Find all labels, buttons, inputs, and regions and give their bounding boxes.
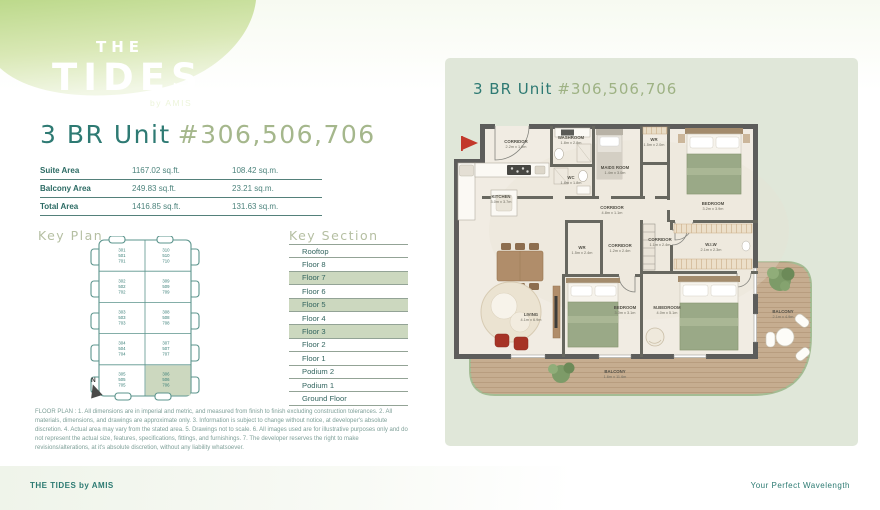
area-table: Suite Area1167.02 sq.ft.108.42 sq.m.Balc… <box>40 162 322 216</box>
key-section-floor-floor-2: Floor 2 <box>289 339 408 352</box>
disclaimer-text: FLOOR PLAN : 1. All dimensions are in im… <box>35 408 415 453</box>
key-plan-unit-cell: 310510710 <box>162 248 170 264</box>
room-label-corridor-2: CORRIDOR1.2m x 2.4m <box>608 243 632 253</box>
key-section-floor-floor-7: Floor 7 <box>289 272 408 285</box>
brochure-page: THE TIDES by AMIS 3 BR Unit#306,506,706 … <box>0 0 880 510</box>
key-section-heading: Key Section <box>289 228 379 243</box>
room-label-m-bedroom: M.BEDROOM4.0m x 5.1m <box>653 305 681 315</box>
room-label-kitchen: KITCHEN3.0m x 3.7m <box>491 194 512 204</box>
key-plan-unit-cell: 303503703 <box>118 310 126 326</box>
room-label-washroom: WASHROOM1.8m x 2.8m <box>558 135 585 145</box>
area-row-sqm: 23.21 sq.m. <box>232 184 320 193</box>
floor-plan-title-prefix: 3 BR Unit <box>473 80 552 98</box>
room-label-bedroom-top: BEDROOM3.2m x 3.9m <box>702 201 725 211</box>
key-plan-unit-cell: 306506706 <box>162 372 170 388</box>
key-plan-unit-cell: 305505705 <box>118 372 126 388</box>
key-plan-unit-cell: 308508708 <box>162 310 170 326</box>
room-label-corridor-main: CORRIDOR4.8m x 1.1m <box>600 205 624 215</box>
key-section-floor-floor-8: Floor 8 <box>289 258 408 271</box>
key-section-floor-floor-5: Floor 5 <box>289 299 408 312</box>
area-table-row: Balcony Area249.83 sq.ft.23.21 sq.m. <box>40 180 322 198</box>
room-label-balcony-right: BALCONY2.1m x 4.9m <box>772 309 793 319</box>
bedroom-top-bed <box>678 128 750 194</box>
north-label: N <box>91 377 96 384</box>
area-row-label: Suite Area <box>40 166 132 175</box>
tv-console <box>553 286 560 338</box>
footer-band <box>0 466 880 510</box>
area-row-sqft: 1416.85 sq.ft. <box>132 202 232 211</box>
key-section-floor-floor-3: Floor 3 <box>289 325 408 338</box>
room-label-corridor-3: CORRIDOR1.1m x 2.4m <box>648 237 672 247</box>
key-plan-unit-cell: 301501701 <box>118 248 126 264</box>
key-plan-diagram: 3015017013025027023035037033045047043055… <box>85 236 205 404</box>
area-table-row: Total Area1416.85 sq.ft.131.63 sq.m. <box>40 198 322 216</box>
key-section-list: RooftopFloor 8Floor 7Floor 6Floor 5Floor… <box>289 244 408 406</box>
page-title-number: #306,506,706 <box>178 120 376 149</box>
area-row-label: Balcony Area <box>40 184 132 193</box>
room-label-balcony-bottom: BALCONY1.6m x 11.6m <box>604 369 627 379</box>
floor-plan-title: 3 BR Unit#306,506,706 <box>473 80 677 98</box>
logo-byline-text: by AMIS <box>150 98 192 108</box>
logo-the-text: THE <box>96 38 144 56</box>
key-section-floor-rooftop: Rooftop <box>289 245 408 258</box>
bedroom-bottom-bed <box>566 278 620 347</box>
footer-brand: THE TIDES by AMIS <box>30 481 114 490</box>
page-title-prefix: 3 BR Unit <box>40 120 171 149</box>
room-label-bedroom-bottom: BEDROOM3.0m x 3.1m <box>614 305 637 315</box>
footer-tagline: Your Perfect Wavelength <box>751 481 850 490</box>
room-label-maids-room: MAIDS ROOM1.4m x 3.0m <box>601 165 630 175</box>
floor-plan-panel: 3 BR Unit#306,506,706 <box>445 58 858 446</box>
logo-tides-text: TIDES <box>52 56 204 99</box>
area-row-sqm: 108.42 sq.m. <box>232 166 320 175</box>
key-plan-unit-cell: 304504704 <box>118 341 126 357</box>
stove-icon <box>507 165 531 175</box>
key-section-floor-podium-1: Podium 1 <box>289 379 408 392</box>
key-section-floor-floor-1: Floor 1 <box>289 352 408 365</box>
area-row-sqft: 249.83 sq.ft. <box>132 184 232 193</box>
key-plan-unit-cell: 309509709 <box>162 279 170 295</box>
room-label-corridor-entrance: CORRIDOR2.2m x 1.0m <box>504 139 528 149</box>
area-table-row: Suite Area1167.02 sq.ft.108.42 sq.m. <box>40 162 322 180</box>
service-shaft <box>643 224 655 270</box>
key-section-floor-podium-2: Podium 2 <box>289 366 408 379</box>
wr-top-shelving <box>643 127 667 134</box>
page-title: 3 BR Unit#306,506,706 <box>40 120 376 149</box>
area-row-sqft: 1167.02 sq.ft. <box>132 166 232 175</box>
area-row-sqm: 131.63 sq.m. <box>232 202 320 211</box>
key-plan-unit-cell: 307507707 <box>162 341 170 357</box>
key-section-floor-ground-floor: Ground Floor <box>289 392 408 405</box>
floor-plan-drawing: CORRIDOR2.2m x 1.0mWASHROOM1.8m x 2.8mWC… <box>449 110 849 410</box>
area-row-label: Total Area <box>40 202 132 211</box>
key-section-floor-floor-6: Floor 6 <box>289 285 408 298</box>
key-section-floor-floor-4: Floor 4 <box>289 312 408 325</box>
floor-plan-title-number: #306,506,706 <box>557 80 677 98</box>
tides-logo: THE TIDES by AMIS <box>0 0 260 115</box>
key-plan-unit-cell: 302502702 <box>118 279 126 295</box>
entrance-flag-icon <box>461 136 478 151</box>
